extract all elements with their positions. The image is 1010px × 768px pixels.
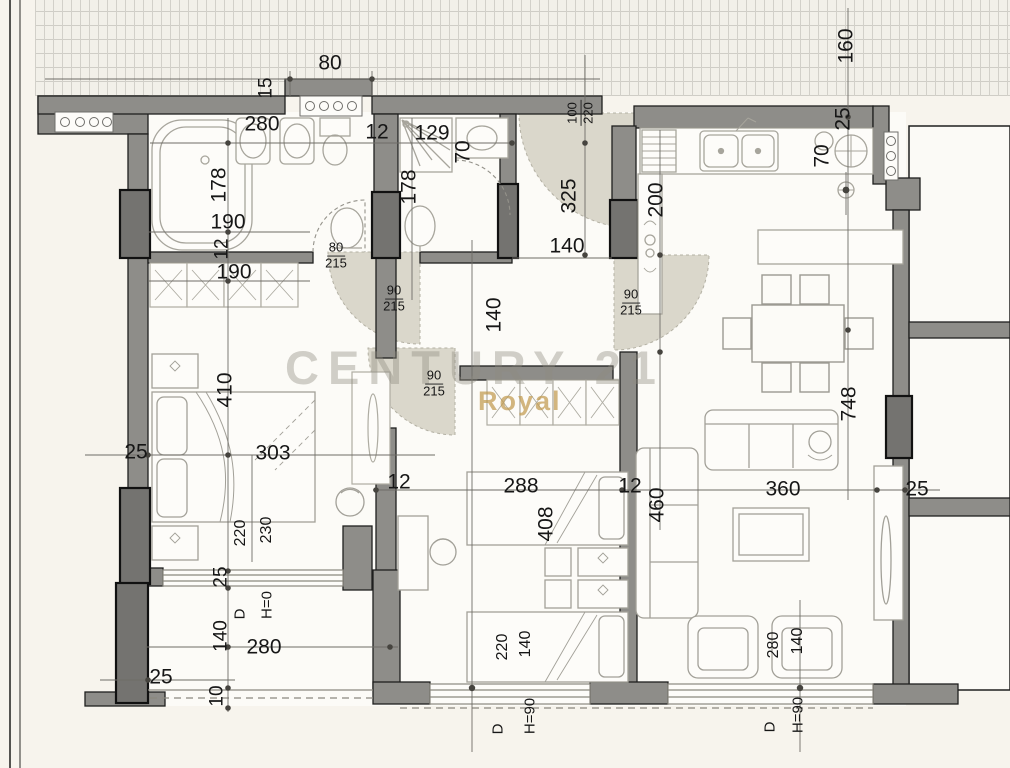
dim-window-living-140: 140 [790, 628, 806, 655]
door-kitchen-size: 90 215 [620, 288, 642, 319]
door-bedroom2-size: 90 215 [423, 369, 445, 400]
dim-wall-12-master: 12 [387, 472, 410, 493]
dim-balcony-width-280: 280 [246, 637, 281, 658]
door-entrance-size: 100 220 [566, 100, 597, 126]
watermark-sub: Royal [478, 386, 562, 417]
dim-wardrobe-zone-190: 190 [216, 262, 251, 283]
dim-window-bedroom2-220: 220 [495, 634, 511, 661]
dim-balcony-wall-25: 25 [212, 566, 231, 587]
dim-shower-nook-70: 70 [453, 140, 474, 163]
dim-living-width-360: 360 [765, 479, 800, 500]
dim-master-width-303: 303 [255, 443, 290, 464]
dim-shower-depth-178: 178 [399, 169, 420, 204]
dim-bedroom2-width-288: 288 [503, 476, 538, 497]
dim-wall-12-a: 12 [365, 122, 388, 143]
dim-living-depth-460: 460 [647, 487, 668, 522]
door-bathroom-size: 80 215 [325, 241, 347, 272]
label-balcony-sill-h0: H=0 [260, 591, 275, 619]
dim-wall-25-left: 25 [124, 442, 147, 463]
dim-master-bed-230: 230 [259, 517, 275, 544]
dim-wall-25-top-right: 25 [833, 107, 854, 130]
dim-bathroom-depth-178: 178 [209, 167, 230, 202]
dim-hall-depth-325: 325 [559, 178, 580, 213]
dim-window-living-280: 280 [766, 632, 782, 659]
dim-wall-25-right: 25 [905, 479, 928, 500]
dim-balcony-depth-140: 140 [212, 620, 231, 652]
label-balcony-door-d: D [233, 609, 248, 620]
dim-terrace-160: 160 [836, 28, 857, 63]
dim-master-depth-410: 410 [215, 372, 236, 407]
dim-living-length-748: 748 [839, 386, 860, 421]
dim-balcony-25: 25 [149, 667, 172, 688]
dim-window-bedroom2-140: 140 [518, 631, 534, 658]
dim-bathtub-zone-190: 190 [210, 212, 245, 233]
dim-balcony-slab-10: 10 [208, 685, 227, 706]
dim-shower-room-129: 129 [414, 123, 449, 144]
dim-corridor-140: 140 [484, 297, 505, 332]
dim-stove-70: 70 [812, 144, 833, 167]
dim-wall-12-bedroom2: 12 [618, 476, 641, 497]
dim-wall-12-b: 12 [213, 238, 232, 259]
floor-plan-sheet: CENTURY 21 Royal 80 15 280 12 129 70 160… [0, 0, 1010, 768]
label-window-living-h90: H=90 [791, 697, 806, 733]
dim-kitchen-counter-200: 200 [646, 182, 667, 217]
label-window-bedroom2-h90: H=90 [523, 698, 538, 734]
door-master-size: 90 215 [383, 284, 405, 315]
dim-bedroom2-depth-408: 408 [536, 506, 557, 541]
dim-niche-depth-15: 15 [257, 77, 276, 98]
dim-master-bed-220: 220 [233, 520, 249, 547]
dim-terrace-niche-80: 80 [318, 53, 341, 74]
dim-hall-width-140: 140 [549, 236, 584, 257]
sheet-edge-lines [10, 0, 20, 768]
dim-bathroom-width-280: 280 [244, 114, 279, 135]
label-window-living-d: D [763, 722, 778, 733]
label-window-bedroom2-d: D [491, 724, 506, 735]
